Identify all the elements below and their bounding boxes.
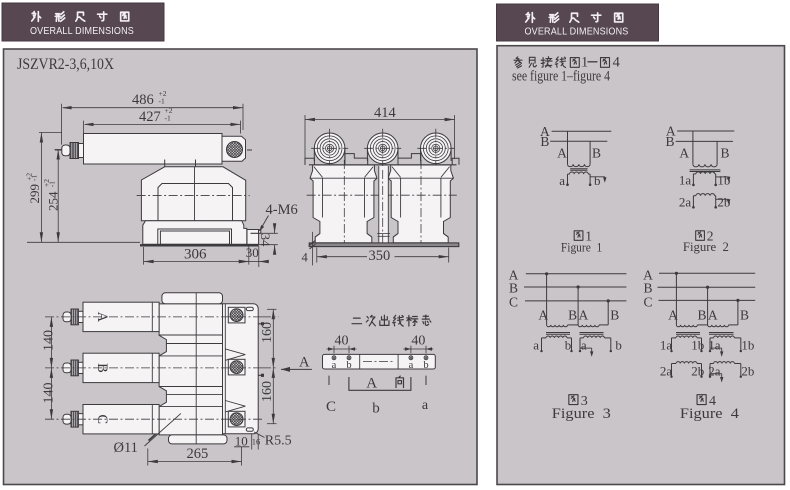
svg-text:B: B [610,308,619,323]
svg-text:-1: -1 [48,181,57,187]
svg-text:a: a [581,338,587,353]
svg-text:1a: 1a [660,338,673,353]
svg-text:C: C [643,294,652,309]
svg-text:2a: 2a [679,195,692,210]
svg-text:-1: -1 [159,96,165,105]
svg-text:B: B [540,134,549,149]
svg-text:Figure 3: Figure 3 [552,406,611,422]
svg-text:A: A [366,375,377,391]
svg-text:299: 299 [27,184,42,204]
svg-text:40: 40 [411,334,425,349]
svg-text:C: C [326,399,336,415]
svg-text:160: 160 [260,381,275,402]
svg-text:Figure 1: Figure 1 [561,240,602,254]
svg-text:A: A [668,308,678,323]
svg-text:b: b [346,360,351,371]
svg-text:34: 34 [258,234,273,248]
svg-text:40: 40 [335,334,349,349]
svg-text:10: 10 [235,434,248,449]
svg-text:C: C [94,414,110,424]
svg-text:4: 4 [302,251,309,265]
svg-text:30: 30 [246,245,259,260]
svg-text:A: A [557,145,567,160]
svg-text:A: A [94,312,110,323]
svg-text:b: b [565,338,572,353]
svg-text:140: 140 [42,383,57,404]
svg-text:414: 414 [374,105,397,121]
svg-text:OVERALL DIMENSIONS: OVERALL DIMENSIONS [30,25,134,37]
svg-text:Ø11: Ø11 [114,440,138,456]
svg-text:B: B [665,134,674,149]
svg-text:b: b [423,360,428,371]
svg-text:350: 350 [369,248,391,264]
svg-text:486: 486 [132,92,154,108]
svg-text:a: a [332,360,337,371]
svg-text:b: b [372,401,380,417]
svg-text:B: B [568,308,577,323]
svg-text:R5.5: R5.5 [265,434,292,449]
svg-text:160: 160 [260,322,275,343]
svg-text:a: a [409,360,414,371]
svg-text:2a: 2a [708,363,721,378]
svg-text:A: A [538,308,548,323]
svg-text:B: B [720,146,729,161]
svg-text:Figure 2: Figure 2 [683,240,729,254]
svg-text:B: B [592,145,601,160]
svg-text:C: C [509,294,518,309]
svg-text:B: B [697,308,706,323]
svg-text:265: 265 [187,446,209,462]
svg-text:a: a [533,338,539,353]
svg-text:140: 140 [42,330,57,351]
svg-text:2a: 2a [660,363,673,378]
svg-text:b: b [615,338,622,353]
svg-text:427: 427 [139,109,161,125]
svg-text:A: A [679,146,689,161]
svg-text:4: 4 [613,54,621,70]
svg-text:1a: 1a [708,338,721,353]
svg-text:JSZVR2-3,6,10X: JSZVR2-3,6,10X [17,56,114,73]
svg-text:Figure 4: Figure 4 [680,406,740,422]
svg-text:16: 16 [252,437,260,447]
svg-text:OVERALL DIMENSIONS: OVERALL DIMENSIONS [525,25,629,37]
svg-text:b: b [594,173,601,188]
svg-text:1b: 1b [741,338,754,353]
svg-text:4-M6: 4-M6 [266,202,298,218]
svg-text:1a: 1a [679,172,692,187]
svg-text:2b: 2b [741,363,754,378]
svg-text:-1: -1 [29,175,38,181]
svg-text:B: B [740,308,749,323]
svg-text:a: a [559,173,565,188]
svg-text:A: A [579,308,589,323]
svg-text:A: A [708,308,718,323]
svg-text:B: B [643,281,652,296]
svg-text:B: B [94,363,110,373]
svg-text:306: 306 [184,247,207,263]
svg-text:-1: -1 [165,113,171,122]
svg-text:see figure 1–figure 4: see figure 1–figure 4 [512,69,611,85]
svg-text:1b: 1b [691,338,704,353]
svg-text:a: a [422,398,429,413]
svg-text:254: 254 [45,191,60,211]
svg-text:2b: 2b [691,363,704,378]
svg-text:A: A [299,355,310,371]
svg-text:B: B [509,281,518,296]
